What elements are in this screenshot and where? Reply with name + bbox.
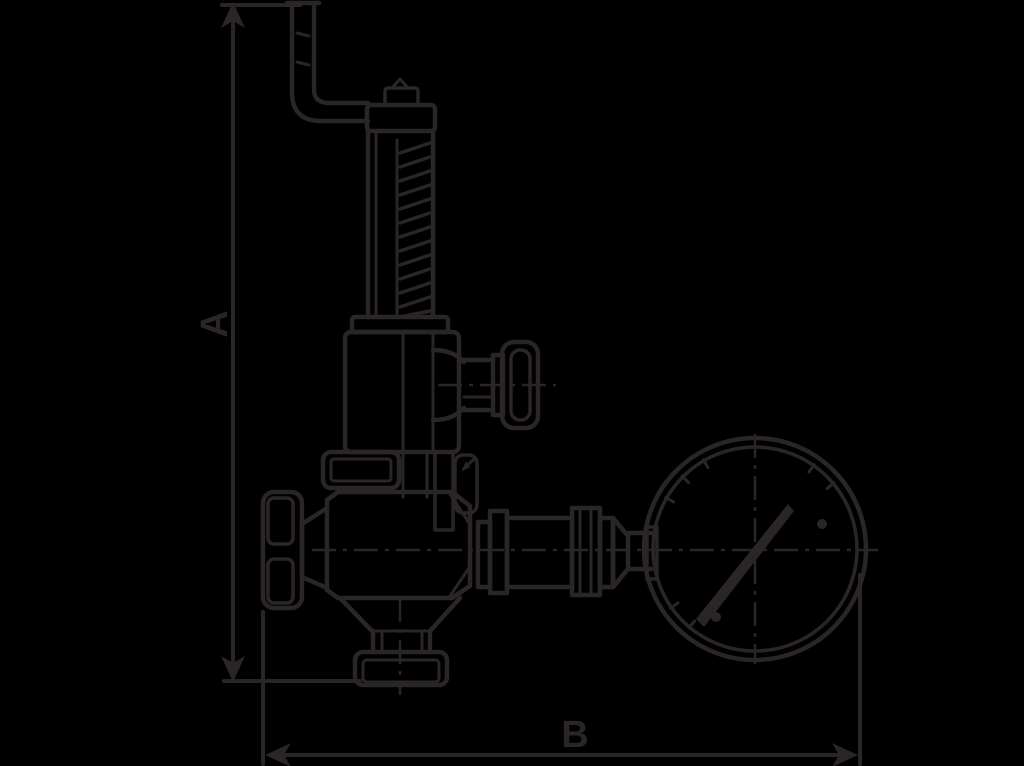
upper-flange-inner bbox=[331, 459, 391, 481]
inlet-handwheel-slot-bottom bbox=[268, 559, 293, 603]
union-nut bbox=[572, 508, 600, 595]
gauge-tick-marks bbox=[666, 460, 834, 628]
spring-bonnet bbox=[368, 131, 433, 317]
gauge-needle bbox=[696, 504, 794, 627]
inlet-handwheel-slot-top bbox=[268, 498, 293, 544]
lever-detail-mark bbox=[297, 62, 309, 65]
gauge-dial-dot bbox=[817, 519, 827, 529]
lever-detail-mark bbox=[297, 33, 309, 36]
body-outline bbox=[327, 492, 470, 598]
cap-nub bbox=[385, 88, 418, 105]
gauge-dial-dot bbox=[711, 612, 721, 622]
reducer-cone bbox=[613, 518, 628, 587]
upper-flange bbox=[323, 452, 399, 488]
valve-technical-drawing: A B bbox=[0, 0, 1024, 766]
dimension-a-label: A bbox=[194, 310, 236, 337]
pipe-section bbox=[507, 518, 572, 587]
cap-plate bbox=[367, 105, 435, 131]
dimension-b: B bbox=[263, 575, 860, 766]
lever-inner-edge bbox=[314, 4, 368, 103]
lifting-lever-pipe bbox=[287, 3, 368, 121]
inlet-cone bbox=[302, 508, 327, 588]
union-coupling-pipe bbox=[478, 508, 657, 595]
inlet-handwheel bbox=[263, 492, 302, 608]
outlet-taper-left bbox=[340, 598, 372, 631]
dimension-b-label: B bbox=[561, 714, 588, 756]
pipe-collar bbox=[490, 511, 507, 593]
side-handwheel bbox=[433, 342, 556, 428]
valve-body bbox=[302, 492, 471, 598]
outlet-taper-right bbox=[430, 598, 460, 631]
drawing-canvas: A B bbox=[0, 0, 1024, 766]
bonnet-top-cap bbox=[367, 79, 435, 131]
bottom-outlet bbox=[340, 598, 460, 695]
spring-coils bbox=[400, 143, 430, 317]
